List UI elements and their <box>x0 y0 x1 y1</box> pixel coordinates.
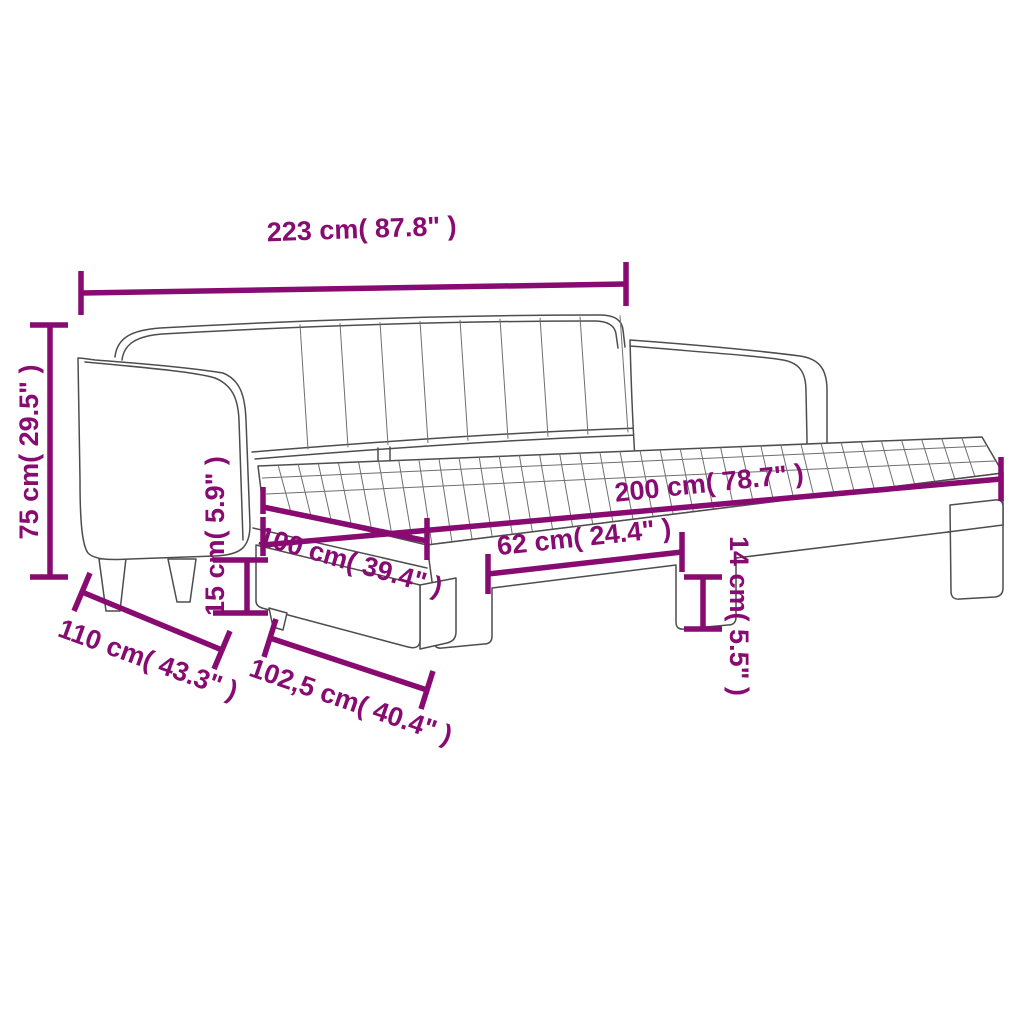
dim-overall-length: 223 cm( 87.8" ) <box>81 211 626 315</box>
trundle-end-leg <box>950 500 1003 599</box>
dim-label-trundle-frame-height: 14 cm( 5.5" ) <box>724 536 754 696</box>
dim-label-overall-depth: 110 cm( 43.3" ) <box>54 613 241 706</box>
dim-label-overall-height: 75 cm( 29.5" ) <box>14 365 44 540</box>
daybed-dimension-diagram: 223 cm( 87.8" ) 75 cm( 29.5" ) 200 cm( 7… <box>0 0 1024 1024</box>
dim-line <box>81 284 626 293</box>
backrest-fluting-lines <box>300 315 628 449</box>
dimension-diagram-page: 223 cm( 87.8" ) 75 cm( 29.5" ) 200 cm( 7… <box>0 0 1024 1024</box>
left-rear-leg <box>168 559 196 602</box>
dim-label-overall-length: 223 cm( 87.8" ) <box>266 211 457 248</box>
dim-overall-height: 75 cm( 29.5" ) <box>14 325 68 577</box>
dim-label-underbed-clearance: 15 cm( 5.9" ) <box>200 456 230 616</box>
